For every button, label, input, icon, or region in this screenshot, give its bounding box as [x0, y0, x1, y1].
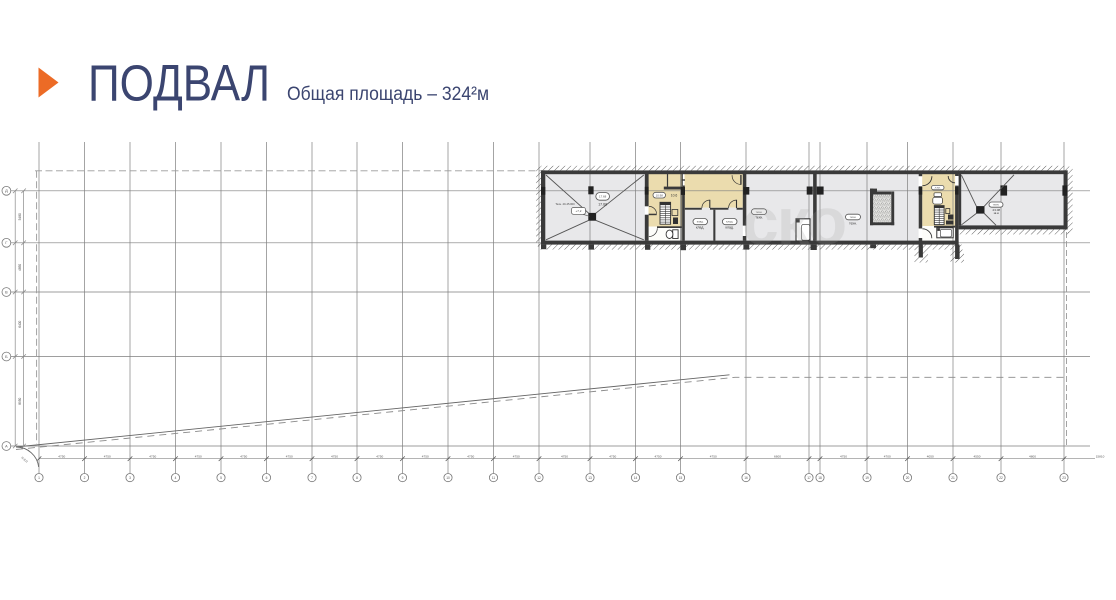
svg-text:л.кл.: л.кл. — [935, 186, 941, 190]
svg-text:4700: 4700 — [884, 454, 891, 458]
svg-text:6600: 6600 — [774, 454, 781, 458]
svg-text:Общая площадь – 324²м: Общая площадь – 324²м — [287, 84, 489, 105]
svg-text:4750: 4750 — [149, 454, 156, 458]
svg-text:6: 6 — [266, 476, 268, 480]
svg-text:4750: 4750 — [422, 454, 429, 458]
svg-text:13: 13 — [588, 476, 592, 480]
svg-text:Техн. 40-45.000: Техн. 40-45.000 — [555, 202, 575, 206]
svg-text:4750: 4750 — [376, 454, 383, 458]
svg-text:5480: 5480 — [18, 213, 22, 220]
svg-text:17.68: 17.68 — [599, 195, 607, 199]
svg-text:техн.: техн. — [993, 203, 1000, 207]
svg-text:4550: 4550 — [974, 454, 981, 458]
svg-text:клад.: клад. — [697, 220, 704, 224]
svg-text:15810: 15810 — [1096, 454, 1105, 458]
svg-text:23: 23 — [1062, 476, 1066, 480]
svg-text:10.98: 10.98 — [656, 193, 664, 197]
svg-text:клад.: клад. — [696, 226, 704, 230]
svg-text:17: 17 — [807, 476, 811, 480]
svg-text:20: 20 — [906, 476, 910, 480]
svg-text:9: 9 — [402, 476, 404, 480]
svg-text:1: 1 — [38, 476, 40, 480]
svg-text:4750: 4750 — [286, 454, 293, 458]
svg-text:ПОДВАЛ: ПОДВАЛ — [88, 55, 270, 112]
svg-text:17.68: 17.68 — [598, 203, 607, 207]
svg-text:4750: 4750 — [331, 454, 338, 458]
svg-text:8: 8 — [356, 476, 358, 480]
svg-text:4750: 4750 — [513, 454, 520, 458]
svg-text:4750: 4750 — [710, 454, 717, 458]
svg-text:4750: 4750 — [561, 454, 568, 458]
svg-text:В: В — [5, 290, 8, 294]
svg-text:R-9,0: R-9,0 — [20, 456, 28, 464]
svg-text:19: 19 — [865, 476, 869, 480]
svg-text:4750: 4750 — [655, 454, 662, 458]
svg-text:Г: Г — [5, 241, 7, 245]
svg-text:4: 4 — [175, 476, 177, 480]
svg-text:4800: 4800 — [1029, 454, 1036, 458]
svg-text:Д: Д — [5, 189, 8, 193]
svg-text:А: А — [5, 444, 8, 448]
svg-text:18: 18 — [818, 476, 822, 480]
svg-text:8950: 8950 — [18, 397, 22, 404]
svg-text:4750: 4750 — [195, 454, 202, 458]
svg-text:4750: 4750 — [840, 454, 847, 458]
svg-text:3: 3 — [129, 476, 131, 480]
svg-text:техн.: техн. — [850, 215, 857, 219]
svg-text:10.6: 10.6 — [671, 193, 678, 197]
svg-text:техн.: техн. — [849, 221, 857, 225]
svg-text:12: 12 — [537, 476, 541, 480]
svg-text:15: 15 — [679, 476, 683, 480]
svg-text:ско: ско — [742, 184, 845, 258]
svg-text:+7,2: +7,2 — [576, 209, 582, 213]
svg-text:4750: 4750 — [467, 454, 474, 458]
svg-text:4750: 4750 — [58, 454, 65, 458]
svg-text:4750: 4750 — [609, 454, 616, 458]
svg-text:4850: 4850 — [18, 264, 22, 271]
svg-text:5: 5 — [220, 476, 222, 480]
svg-text:14: 14 — [634, 476, 638, 480]
svg-text:7: 7 — [311, 476, 313, 480]
svg-text:22: 22 — [999, 476, 1003, 480]
svg-text:10: 10 — [446, 476, 450, 480]
svg-text:кв.м: кв.м — [994, 212, 999, 215]
svg-text:клад.: клад. — [726, 226, 734, 230]
svg-text:4750: 4750 — [104, 454, 111, 458]
svg-text:16: 16 — [744, 476, 748, 480]
svg-text:4750: 4750 — [240, 454, 247, 458]
svg-text:6400: 6400 — [18, 320, 22, 327]
svg-text:клад.: клад. — [726, 220, 733, 224]
svg-text:2: 2 — [84, 476, 86, 480]
svg-text:11: 11 — [492, 476, 496, 480]
svg-text:21: 21 — [951, 476, 955, 480]
svg-text:4050: 4050 — [927, 454, 934, 458]
